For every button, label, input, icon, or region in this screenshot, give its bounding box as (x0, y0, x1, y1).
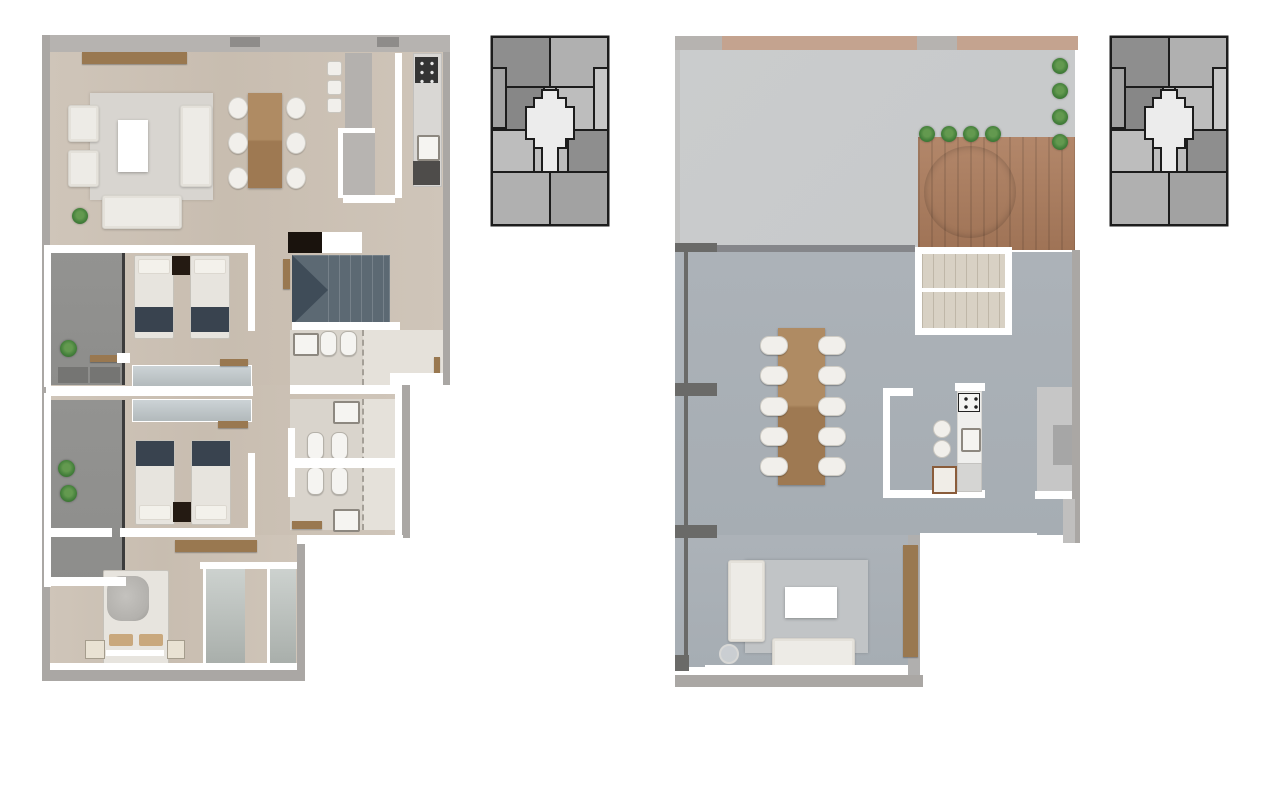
nightstand (173, 502, 191, 522)
wall (288, 428, 295, 497)
balcony-outer-wall (44, 245, 51, 387)
planter-box (90, 367, 120, 383)
plant-icon (985, 126, 1001, 142)
parapet-gray (917, 36, 957, 50)
twin-bed (134, 255, 174, 339)
plant-icon (1052, 58, 1068, 74)
pillow (109, 634, 133, 646)
structural-column (675, 655, 689, 671)
dining-chair (228, 167, 248, 189)
dining-chair (760, 457, 788, 476)
dining-chair (818, 457, 846, 476)
bidet-icon (331, 432, 348, 460)
dining-chair (760, 427, 788, 446)
wall (395, 53, 402, 198)
outer-wall-right-upper (443, 52, 450, 385)
pillow (195, 505, 227, 520)
wardrobe-strip (132, 399, 252, 422)
twin-bed (190, 255, 230, 339)
bar-stool (933, 440, 951, 458)
wall (46, 386, 253, 396)
plant-icon (1052, 134, 1068, 150)
parapet-tan (957, 36, 1078, 50)
cabinet-shelf (1035, 491, 1072, 499)
bar-stool (327, 80, 342, 95)
nightstand (85, 640, 105, 659)
dining-chair (818, 366, 846, 385)
stove-icon (958, 393, 980, 412)
wall (705, 665, 908, 675)
wall (292, 322, 400, 330)
floor-plan-sheet (0, 0, 1280, 801)
dining-chair (228, 132, 248, 154)
outer-wall-bottom (675, 675, 923, 687)
bed-blanket (136, 441, 174, 466)
open-living-dining-floor (675, 252, 1072, 535)
dining-chair (760, 397, 788, 416)
window-top-1 (230, 37, 260, 47)
wall (290, 385, 395, 394)
toilet-icon (307, 432, 324, 460)
bar-stool (327, 61, 342, 76)
kitchen-wall (955, 383, 985, 391)
dining-chair-column-right (818, 336, 844, 476)
bar-stool-column (327, 61, 341, 113)
stair-flight-upper (922, 254, 1005, 288)
floor-lamp-icon (719, 644, 739, 664)
stair-handrail (283, 259, 290, 289)
toilet-icon (340, 331, 357, 356)
wall (248, 247, 255, 331)
cabinet-panel (1053, 425, 1072, 465)
bar-stool (327, 98, 342, 113)
dining-table (248, 93, 282, 188)
sink-icon (293, 333, 319, 356)
deck-plant-row (919, 126, 1001, 144)
bed-footboard (106, 650, 164, 656)
nightstand (167, 640, 185, 659)
wall (292, 458, 395, 468)
wardrobe-strip (132, 365, 252, 388)
kitchen-wall (883, 388, 913, 396)
wardrobe-closet (203, 568, 245, 663)
stair-landing (322, 232, 362, 253)
plant-icon (919, 126, 935, 142)
outer-wall-right-lower (297, 535, 305, 671)
sink-icon (333, 509, 360, 532)
window-mullion (684, 252, 688, 667)
dining-chair (818, 427, 846, 446)
bed-blanket (192, 441, 230, 466)
stair-flight-lower (922, 292, 1005, 328)
outer-wall-right-mid (402, 385, 410, 538)
shower-glass (362, 330, 366, 385)
staircase (292, 255, 390, 325)
dresser (175, 540, 257, 552)
wardrobe-shelf (220, 359, 248, 366)
sideboard (903, 545, 918, 657)
wall (248, 453, 255, 530)
balcony-1 (50, 252, 125, 385)
dining-chair (228, 97, 248, 119)
plant-icon (60, 340, 77, 357)
armchair (68, 105, 99, 142)
twin-bed (135, 440, 175, 525)
bath-bench (292, 521, 322, 529)
dining-chair (286, 97, 306, 119)
outer-wall-bottom (42, 670, 305, 681)
dining-chair-column-left (228, 97, 246, 189)
bar-stool (933, 420, 951, 438)
wall (297, 535, 403, 544)
balcony-1-glass (122, 252, 125, 385)
armchair (68, 150, 99, 187)
stair-treads (328, 255, 390, 325)
dining-chair-column-right (286, 97, 304, 189)
console-sideboard (82, 52, 187, 64)
kitchen-sink-icon (961, 428, 981, 452)
wall (343, 195, 395, 203)
plant-icon (60, 485, 77, 502)
pillow (138, 259, 170, 274)
balcony-outer-wall (44, 393, 51, 587)
stove-icon (415, 57, 438, 83)
wall (50, 528, 112, 537)
kitchen-wall (883, 396, 890, 490)
parapet-gray (675, 36, 722, 50)
dining-chair (286, 167, 306, 189)
bench (90, 355, 120, 362)
balcony-2-glass (122, 400, 125, 585)
toilet-icon (307, 467, 324, 495)
structural-column (675, 525, 717, 538)
kitchen-island (343, 133, 375, 198)
kitchen-counter-dark (413, 161, 440, 185)
dining-chair (760, 366, 788, 385)
deck-plant-column (1052, 58, 1070, 150)
hot-tub (924, 146, 1016, 238)
plant-icon (941, 126, 957, 142)
planter-box (58, 367, 88, 383)
loveseat-sofa (102, 195, 182, 229)
wardrobe-closet (267, 568, 296, 663)
wine-cabinet (932, 466, 957, 494)
dining-chair (818, 397, 846, 416)
floor-plan-upper-level (675, 30, 1080, 690)
key-plan-left (490, 35, 610, 227)
pillow (194, 259, 226, 274)
twin-bed (191, 440, 231, 525)
kitchen-sink-icon (417, 135, 440, 161)
floor-plan-lower-level (50, 35, 450, 685)
wardrobe-shelf (218, 421, 248, 428)
kitchen-counter-lower (957, 463, 982, 492)
bed-blanket (135, 307, 173, 332)
bed-blanket (191, 307, 229, 332)
wall (46, 245, 255, 253)
wall (395, 385, 402, 535)
nightstand (172, 256, 190, 275)
wall-segment (1063, 499, 1075, 543)
dining-chair (286, 132, 306, 154)
stair-winder (292, 255, 328, 325)
wall (117, 353, 130, 363)
plant-icon (1052, 109, 1068, 125)
wall (390, 373, 443, 385)
toilet-icon (320, 331, 337, 356)
pillow (139, 505, 171, 520)
plant-icon (72, 208, 88, 224)
stair-cabinet (288, 232, 322, 253)
kitchen-peninsula-wall (345, 53, 372, 132)
plant-icon (58, 460, 75, 477)
coffee-table (118, 120, 148, 172)
wall (120, 528, 255, 537)
pillow (139, 634, 163, 646)
sofa (728, 560, 765, 642)
sink-icon (333, 401, 360, 424)
dining-chair (760, 336, 788, 355)
dining-chair-column-left (760, 336, 786, 476)
plant-icon (1052, 83, 1068, 99)
wall (50, 663, 297, 670)
dining-chair (818, 336, 846, 355)
key-plan-right (1109, 35, 1229, 227)
window-top-2 (377, 37, 399, 47)
plant-icon (963, 126, 979, 142)
bar-stool-column (933, 420, 949, 458)
sofa (180, 105, 212, 187)
structural-column (675, 383, 717, 396)
wall (46, 577, 126, 586)
bidet-icon (331, 467, 348, 495)
wall (200, 562, 297, 569)
coffee-table (785, 587, 837, 618)
wall (920, 533, 1037, 543)
parapet-tan (722, 36, 917, 50)
